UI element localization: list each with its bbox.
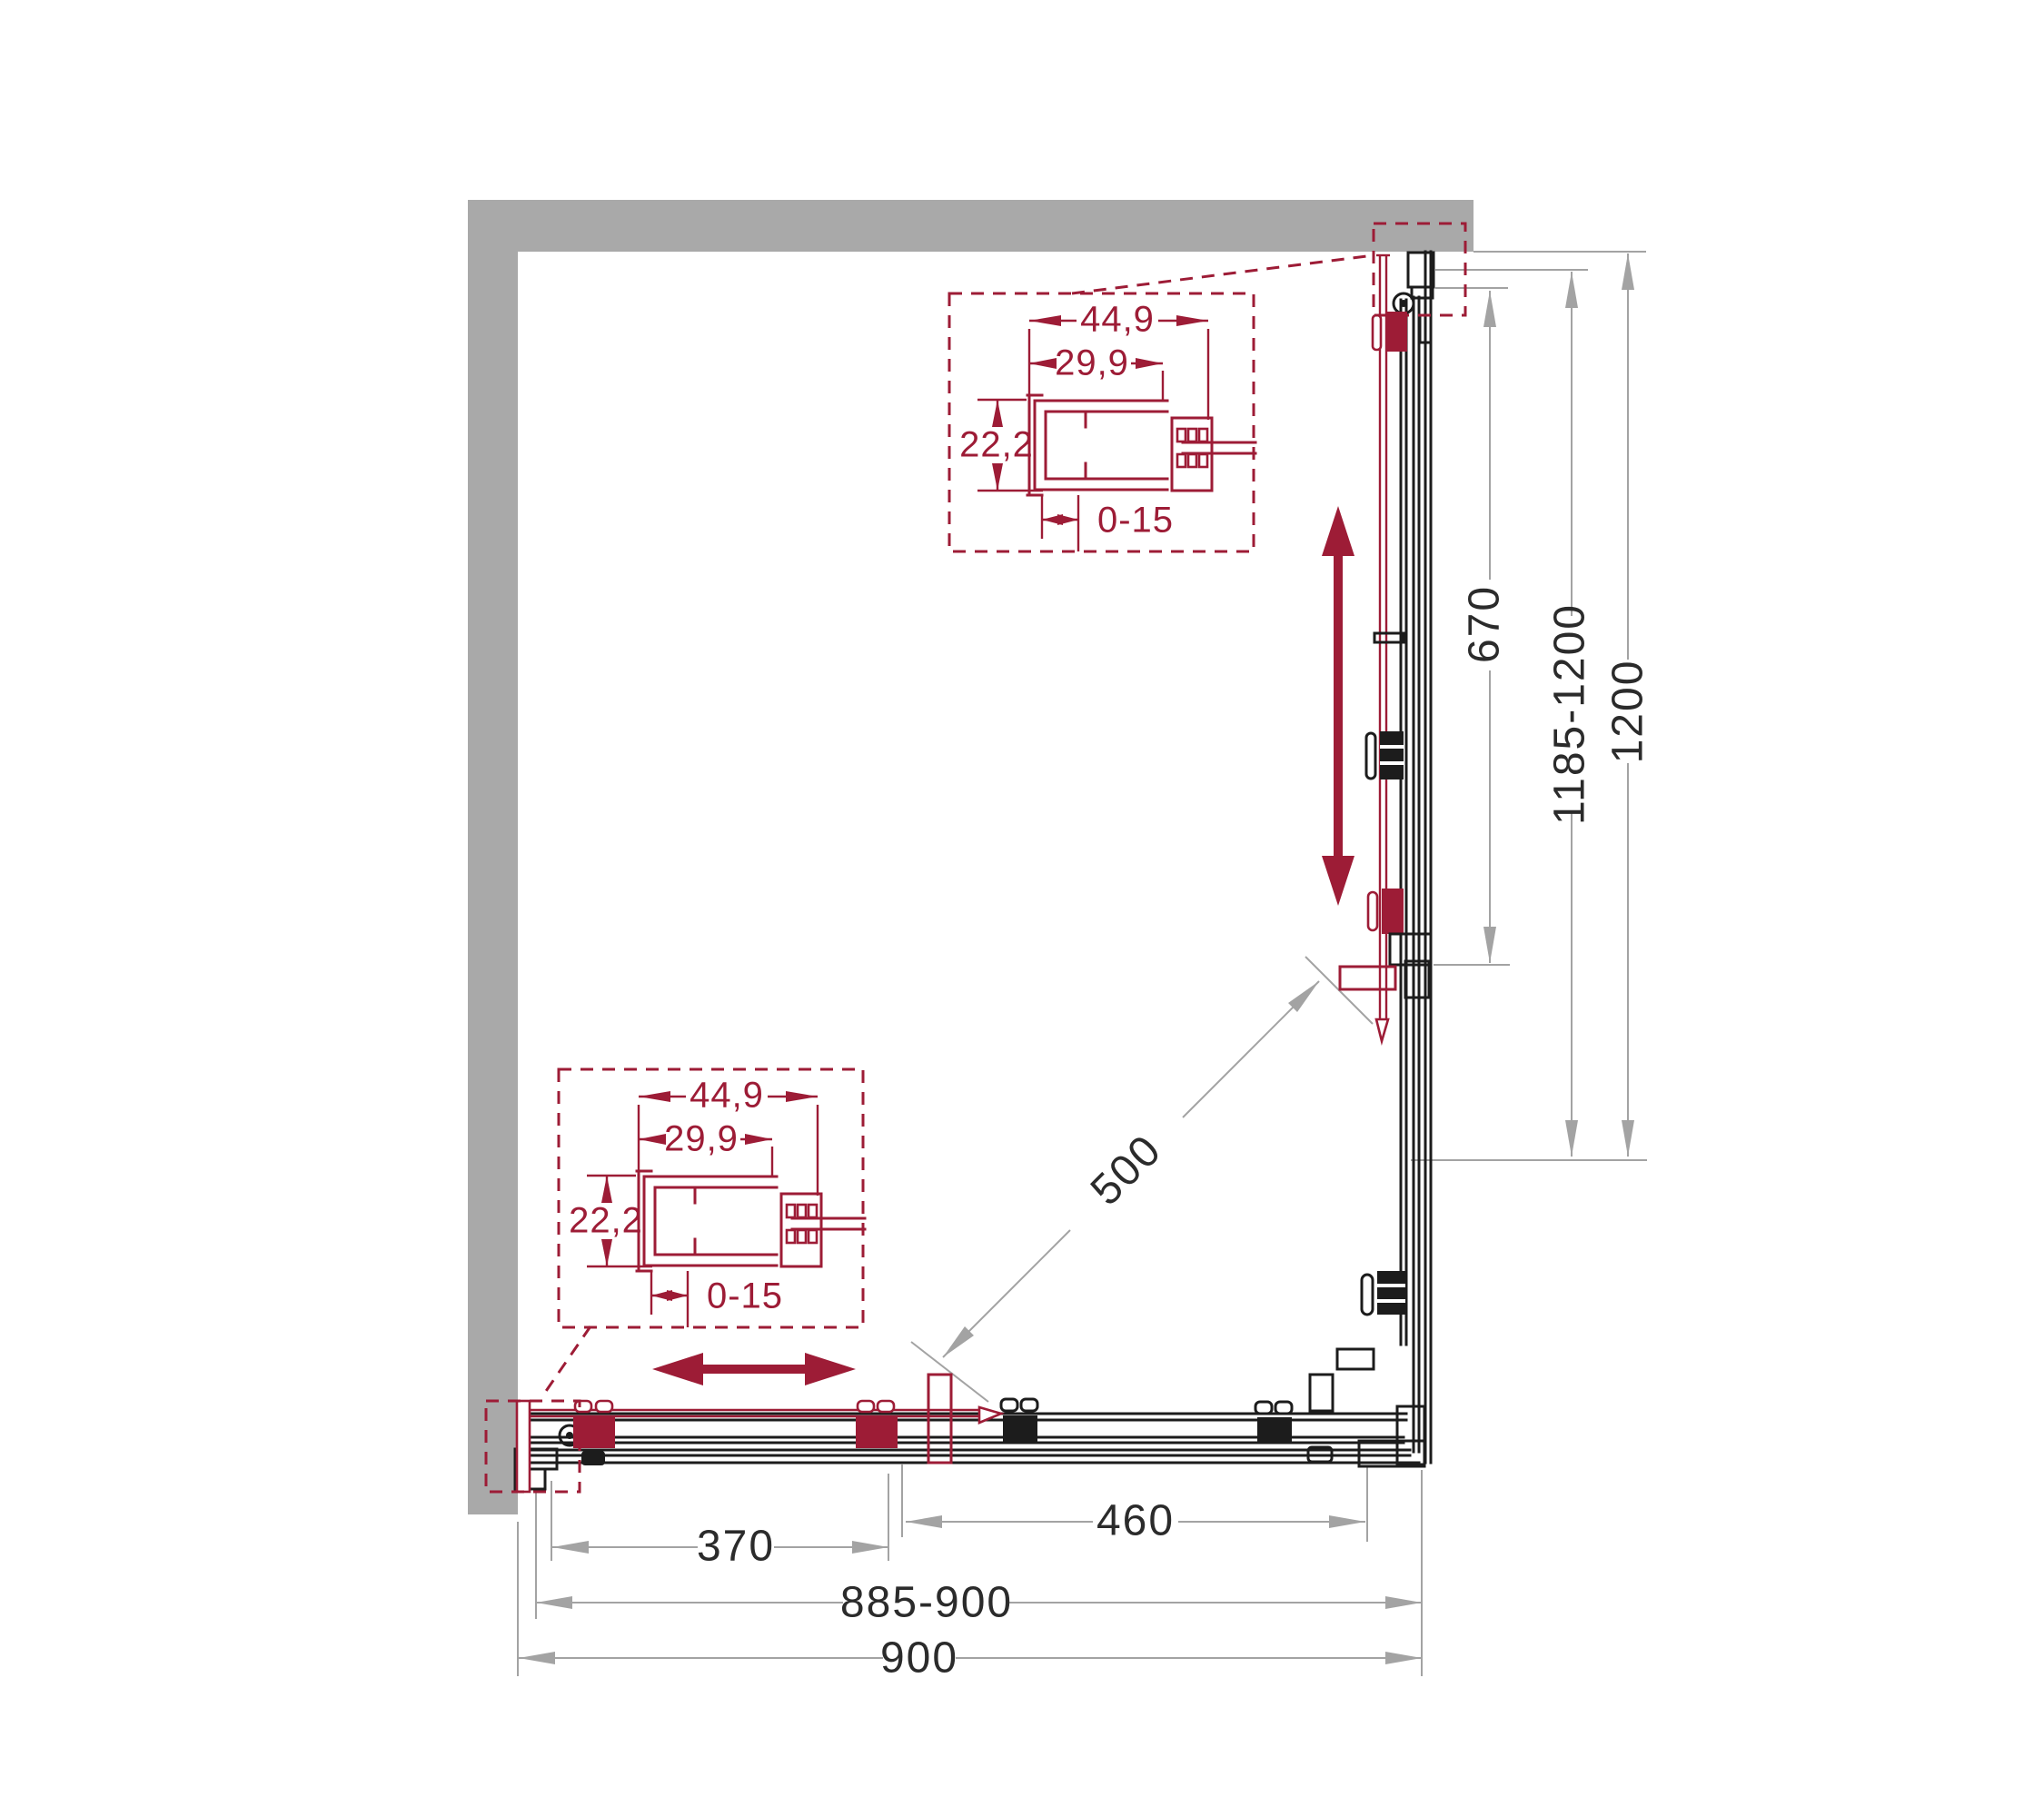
fixed-glass-end-tip xyxy=(1376,1019,1388,1041)
diagram-linework xyxy=(0,0,2044,1817)
dim-label-670: 670 xyxy=(1460,585,1510,663)
detail-top-profile-height: 22,2 xyxy=(959,425,1034,466)
slide-direction-arrow-horizontal xyxy=(652,1353,856,1385)
dim-label-885-900: 885-900 xyxy=(840,1578,1013,1628)
mid-support-bracket xyxy=(1340,961,1429,998)
detail-bottom-overall-width: 44,9 xyxy=(690,1076,764,1117)
horizontal-door-assembly xyxy=(515,1349,1424,1492)
callout-leaders xyxy=(486,223,1465,1492)
roller-clamp-center xyxy=(1001,1399,1037,1443)
dimension-lines xyxy=(519,253,1634,1664)
dim-label-370: 370 xyxy=(697,1522,775,1572)
roller-clamp-mid-left xyxy=(856,1401,898,1448)
detail-top-overall-width: 44,9 xyxy=(1080,300,1155,341)
dim-label-900: 900 xyxy=(880,1633,958,1683)
shower-enclosure-plan-diagram: 370 460 885-900 900 670 1185-1200 1200 5… xyxy=(0,0,2044,1817)
dim-label-1185-1200: 1185-1200 xyxy=(1545,603,1595,825)
detail-top-inner-width: 29,9 xyxy=(1055,343,1129,384)
mid-roller-clamp xyxy=(1366,731,1404,779)
dim-label-460: 460 xyxy=(1096,1496,1175,1546)
detail-top-adjustment-range: 0-15 xyxy=(1097,501,1174,541)
corner-roller-clamp xyxy=(1362,1271,1405,1315)
detail-bottom-inner-width: 29,9 xyxy=(664,1119,739,1160)
slide-direction-arrow-vertical xyxy=(1322,506,1354,906)
detail-bottom-adjustment-range: 0-15 xyxy=(707,1276,783,1317)
dim-label-1200: 1200 xyxy=(1603,660,1653,764)
detail-bottom-profile-height: 22,2 xyxy=(569,1201,643,1242)
